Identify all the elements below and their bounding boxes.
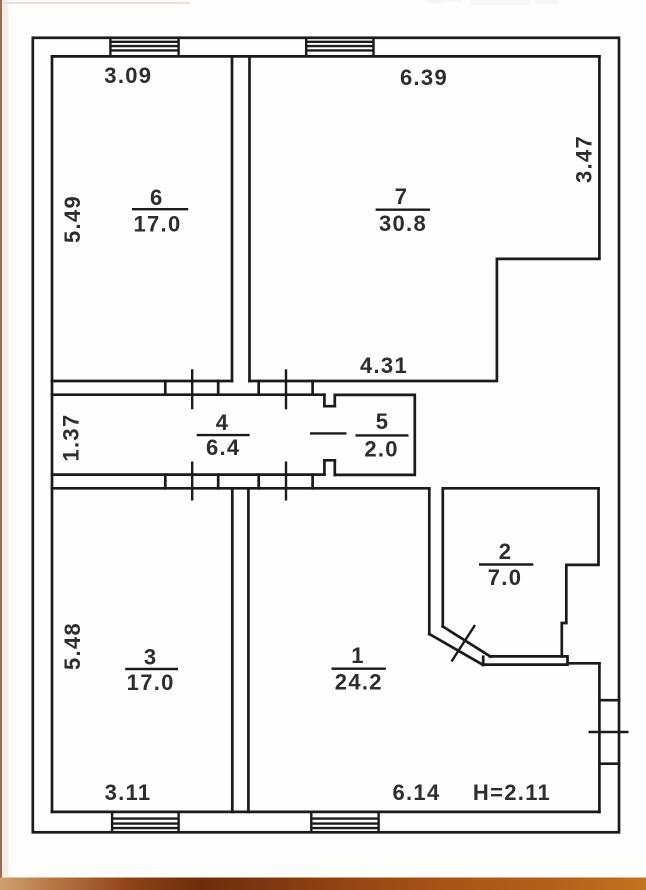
svg-text:6.14: 6.14 [392,780,440,805]
svg-text:4: 4 [216,410,230,435]
svg-text:H=2.11: H=2.11 [473,780,551,805]
svg-text:6: 6 [150,185,164,210]
svg-text:24.2: 24.2 [335,670,383,695]
svg-text:1: 1 [351,643,365,668]
svg-text:5.48: 5.48 [60,622,85,670]
svg-text:7.0: 7.0 [488,565,522,590]
svg-text:1.37: 1.37 [59,413,84,461]
svg-text:3.11: 3.11 [105,780,152,805]
svg-text:3.47: 3.47 [572,135,597,183]
svg-text:7: 7 [395,184,409,209]
svg-text:17.0: 17.0 [133,212,181,237]
svg-text:3.09: 3.09 [104,63,152,88]
svg-text:3: 3 [144,645,158,670]
svg-text:5: 5 [376,409,390,434]
svg-text:6.4: 6.4 [206,435,240,460]
svg-text:6.39: 6.39 [400,65,448,90]
svg-text:17.0: 17.0 [127,670,175,695]
svg-text:2.0: 2.0 [364,436,398,461]
svg-text:5.49: 5.49 [60,195,85,243]
svg-text:2: 2 [499,539,513,564]
svg-text:4.31: 4.31 [360,353,408,378]
svg-text:30.8: 30.8 [379,211,427,236]
